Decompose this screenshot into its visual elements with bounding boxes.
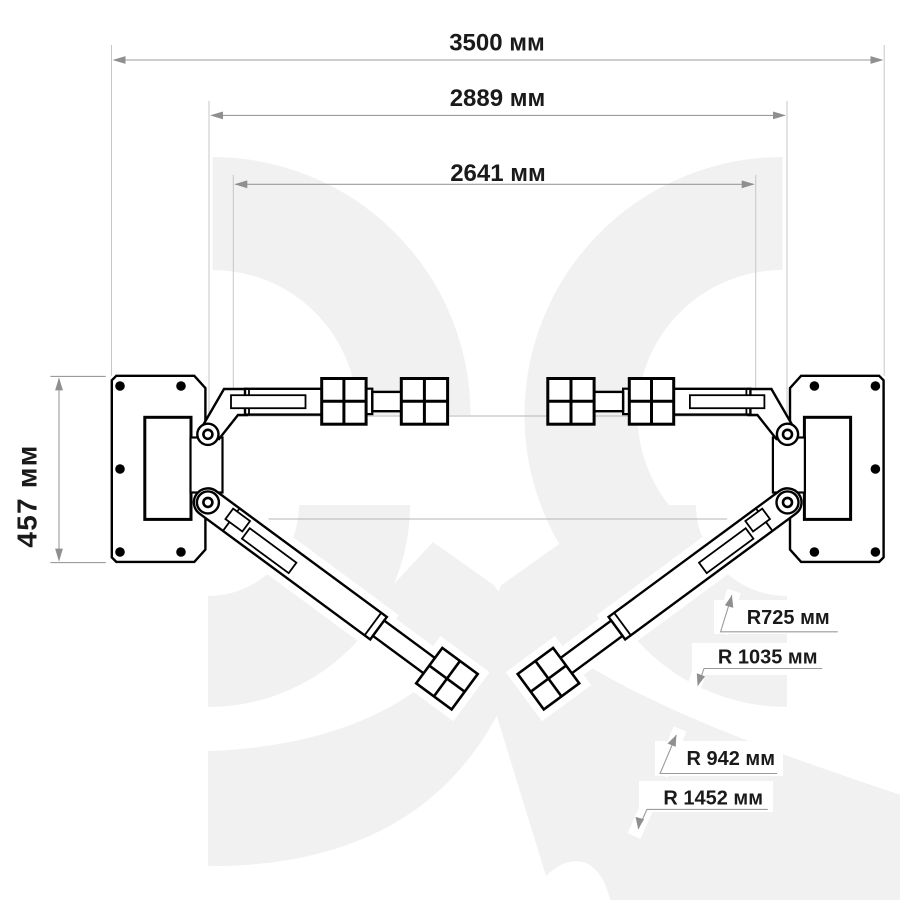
svg-text:2889 мм: 2889 мм (450, 85, 546, 112)
svg-text:457 мм: 457 мм (12, 444, 43, 547)
svg-text:3500 мм: 3500 мм (449, 30, 545, 57)
svg-text:R 1452 мм: R 1452 мм (663, 788, 763, 810)
svg-text:R 942 мм: R 942 мм (686, 748, 775, 770)
svg-text:R725 мм: R725 мм (747, 607, 830, 629)
svg-text:R 1035 мм: R 1035 мм (718, 647, 818, 669)
svg-text:2641 мм: 2641 мм (450, 160, 546, 187)
